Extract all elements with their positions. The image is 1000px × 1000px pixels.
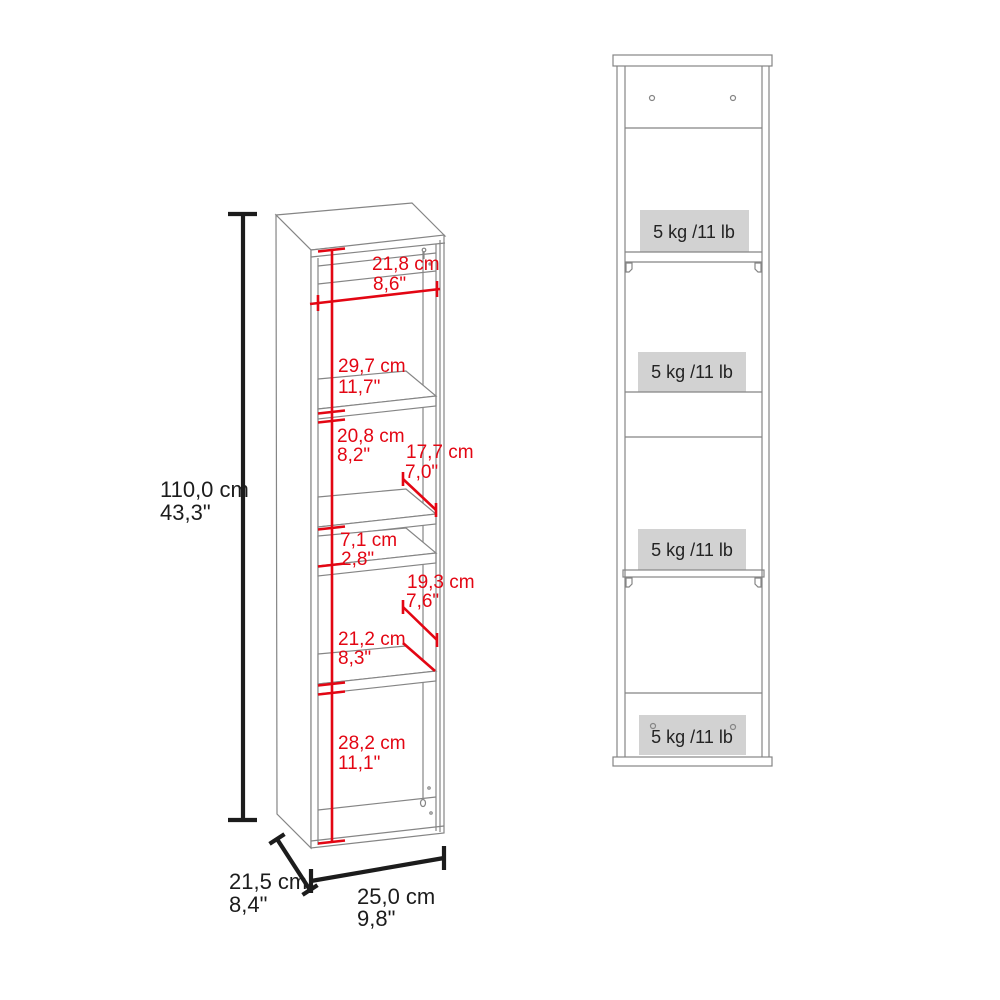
capacity-label-4: 5 kg /11 lb — [651, 727, 733, 747]
capacity-labels: 5 kg /11 lb 5 kg /11 lb 5 kg /11 lb 5 kg… — [651, 222, 735, 747]
shelf-bracket-icon — [755, 263, 761, 272]
inner-width-in-label: 8,6" — [373, 274, 406, 295]
section2-cm-label: 20,8 cm — [337, 426, 405, 447]
width-in-label: 9,8" — [357, 906, 395, 931]
upper-depth-cm-label: 17,7 cm — [406, 442, 474, 463]
diagram-canvas: 21,8 cm 8,6" 29,7 cm 11,7" 20,8 cm 8,2" … — [0, 0, 1000, 1000]
lower-depth-cm-label: 19,3 cm — [407, 572, 475, 593]
lower-depth-in-label: 7,6" — [406, 591, 439, 612]
niche-cm-label: 7,1 cm — [340, 530, 397, 551]
section4-in-label: 11,1" — [338, 753, 380, 774]
section3-cm-label: 21,2 cm — [338, 629, 406, 650]
capacity-label-1: 5 kg /11 lb — [653, 222, 735, 242]
inner-width-cm-label: 21,8 cm — [372, 254, 440, 275]
overall-width-dimension: 25,0 cm 9,8" — [311, 846, 444, 931]
mounting-hole-top-right — [731, 96, 736, 101]
shelf-bracket-icon — [626, 578, 632, 587]
overall-depth-dimension: 21,5 cm 8,4" — [229, 834, 318, 917]
shelf-bracket-icon — [626, 263, 632, 272]
depth-in-label: 8,4" — [229, 892, 267, 917]
capacity-label-2: 5 kg /11 lb — [651, 362, 733, 382]
front-shelf-3 — [623, 570, 764, 587]
capacity-label-3: 5 kg /11 lb — [651, 540, 733, 560]
height-in-label: 43,3" — [160, 500, 211, 525]
depth-cm-label: 21,5 cm — [229, 869, 307, 894]
perspective-view: 21,8 cm 8,6" 29,7 cm 11,7" 20,8 cm 8,2" … — [160, 203, 475, 931]
section1-cm-label: 29,7 cm — [338, 356, 406, 377]
cabinet-left-side-panel — [276, 215, 311, 848]
section3-in-label: 8,3" — [338, 648, 371, 669]
section2-in-label: 8,2" — [337, 445, 370, 466]
furniture-dimension-diagram: 21,8 cm 8,6" 29,7 cm 11,7" 20,8 cm 8,2" … — [0, 0, 1000, 1000]
front-view-structure — [613, 55, 772, 766]
niche-in-label: 2,8" — [341, 549, 374, 570]
front-view: 5 kg /11 lb 5 kg /11 lb 5 kg /11 lb 5 kg… — [613, 55, 772, 766]
shelf-bracket-icon — [755, 578, 761, 587]
upper-depth-in-label: 7,0" — [405, 462, 438, 483]
front-view-shelves — [623, 252, 764, 730]
capacity-boxes — [638, 210, 749, 755]
overall-height-dimension: 110,0 cm 43,3" — [160, 214, 257, 820]
section1-in-label: 11,7" — [338, 377, 380, 398]
section4-cm-label: 28,2 cm — [338, 733, 406, 754]
base-board — [613, 757, 772, 766]
mounting-hole-top-left — [650, 96, 655, 101]
top-board — [613, 55, 772, 66]
front-shelf-1 — [625, 252, 762, 272]
height-cm-label: 110,0 cm — [160, 477, 249, 502]
